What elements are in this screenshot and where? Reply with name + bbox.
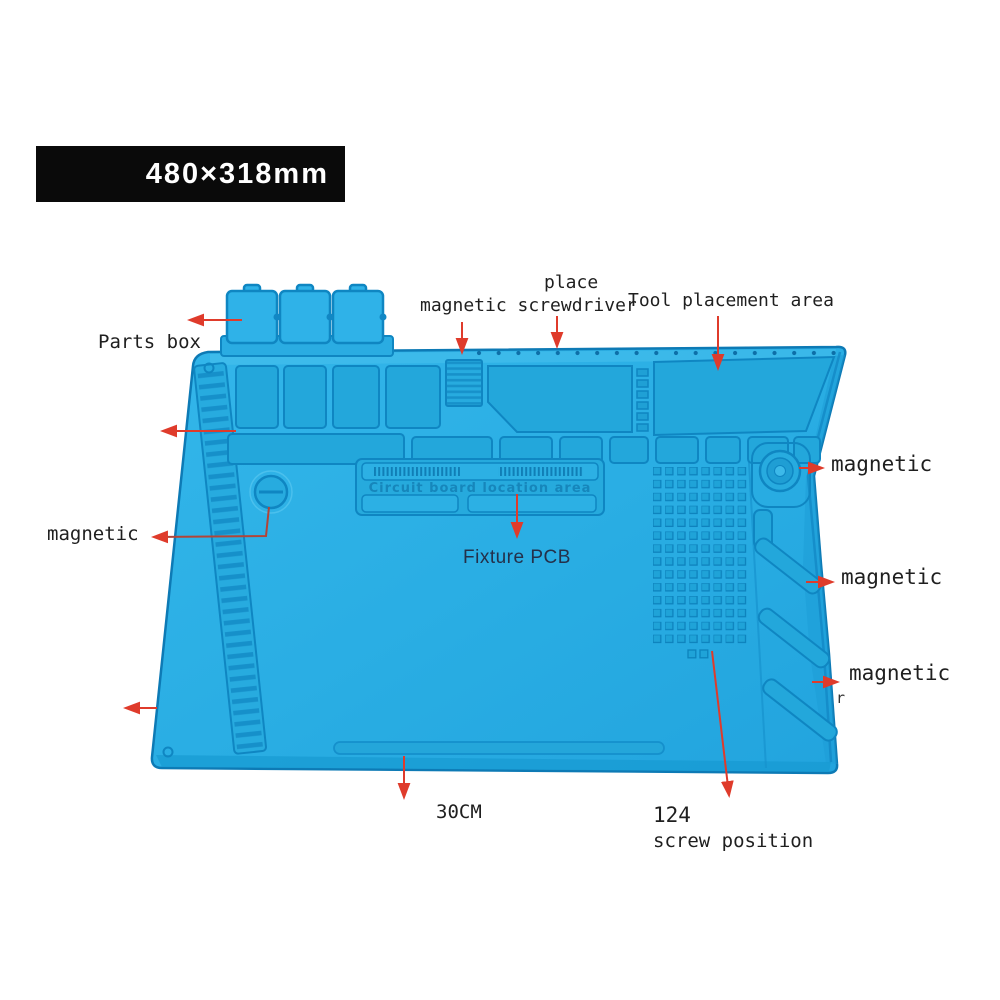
label-magnetic-right-bottom: magnetic xyxy=(849,661,950,685)
screwdriver-tray xyxy=(488,366,632,432)
label-place-line2: magnetic screwdriver xyxy=(420,295,637,316)
label-fixture-pcb: Fixture PCB xyxy=(463,547,571,569)
label-magnetic-right-top: magnetic xyxy=(831,452,932,476)
label-parts-box: Parts box xyxy=(98,331,201,353)
size-badge-text: 480×318mm xyxy=(146,158,329,191)
label-magnetic-right-middle: magnetic xyxy=(841,565,942,589)
product-photo: Circuit board location area xyxy=(0,0,1000,1000)
screwdriver-holder xyxy=(446,360,482,406)
tool-placement-tray xyxy=(654,357,834,435)
top-compartments xyxy=(236,357,834,435)
label-magnetic-left: magnetic xyxy=(47,523,139,545)
top-holes-row xyxy=(476,350,836,356)
size-badge: 480×318mm xyxy=(36,146,345,202)
label-screw-position: screw position xyxy=(653,830,813,852)
parts-box-lids xyxy=(221,285,393,356)
label-stray-mark: r xyxy=(836,689,845,707)
label-screw-count: 124 xyxy=(653,803,691,827)
bottom-groove xyxy=(334,742,664,754)
magnet-circle-left xyxy=(250,471,292,513)
screw-grid xyxy=(653,467,749,658)
label-tool-placement-area: Tool placement area xyxy=(628,290,834,311)
label-place-line1: place xyxy=(544,272,598,293)
label-30cm: 30CM xyxy=(436,801,482,823)
fixture-plate: Circuit board location area xyxy=(356,459,604,515)
embossed-plate-text: Circuit board location area xyxy=(369,481,592,496)
